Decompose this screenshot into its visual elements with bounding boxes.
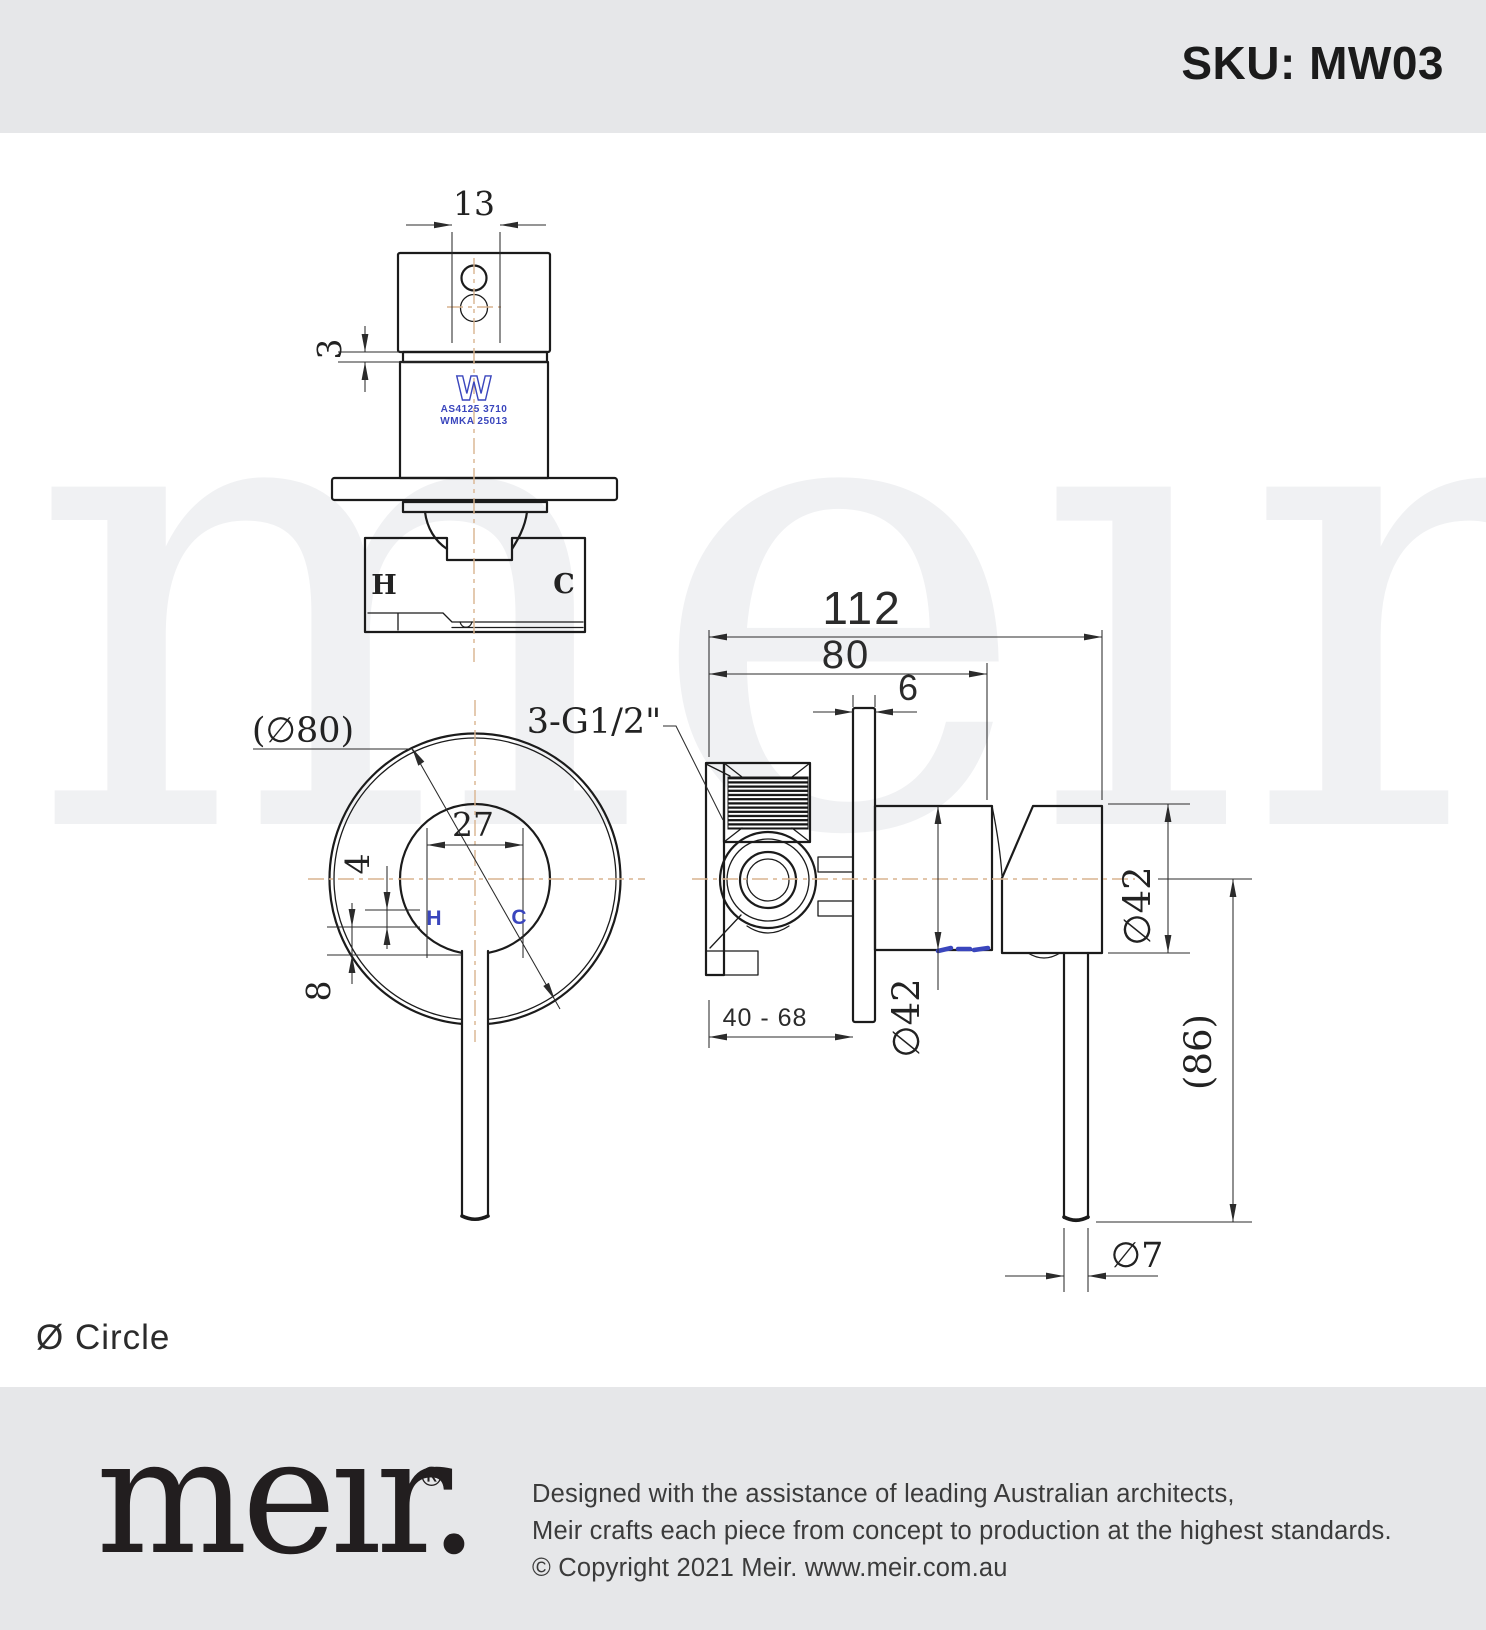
footer-line-1: Designed with the assistance of leading … [532,1476,1392,1513]
dim-handle-len-label: (86) [1177,1014,1220,1090]
dim-3-label: 3 [310,339,349,360]
thread-spec-label: 3-G1/2" [527,702,661,742]
front-cold-label: C [511,906,526,929]
footer-text: Designed with the assistance of leading … [532,1476,1392,1587]
front-hot-label: H [426,907,441,930]
dim-8-label: 8 [299,981,338,1002]
cert-line2: WMKA 25013 [440,416,507,427]
front-view-drawing: (∅80) 27 4 8 H C [252,700,645,1219]
shape-caption: Ø Circle [36,1318,170,1358]
dim-dia80-label: (∅80) [252,711,354,751]
footer-line-2: Meir crafts each piece from concept to p… [532,1513,1392,1550]
dim-27-label: 27 [452,805,494,844]
dim-13-label: 13 [453,184,495,223]
dim-range-label: 40 - 68 [723,1004,808,1032]
spec-sheet-page: SKU: MW03 meır. [0,0,1486,1630]
top-hot-label: H [371,570,397,601]
footer-line-3: © Copyright 2021 Meir. www.meir.com.au [532,1550,1392,1587]
side-view-drawing: 112 80 6 3-G1/2" 40 - 68 ∅42 [527,582,1252,1292]
watermark-cert-icon: W [456,369,492,408]
top-cold-label: C [553,569,575,600]
dim-handle-dia-label: ∅42 [1116,866,1159,945]
registered-mark: ® [418,1462,445,1493]
dim-rod-dia-label: ∅7 [1111,1236,1164,1276]
body-logo-mark [938,948,988,951]
dim-112-label: 112 [822,582,901,634]
top-view-drawing: 13 3 H C W AS4125 3710 WMKA 25013 [310,184,617,662]
cert-line1: AS4125 3710 [441,404,508,415]
meir-logo: meır. [96,1417,473,1577]
technical-drawing: 13 3 H C W AS4125 3710 WMKA 25013 [0,0,1486,1630]
dim-4-label: 4 [338,854,377,875]
dim-6-label: 6 [898,667,918,708]
dim-body-dia-label: ∅42 [885,978,928,1057]
dim-80-label: 80 [822,633,871,677]
